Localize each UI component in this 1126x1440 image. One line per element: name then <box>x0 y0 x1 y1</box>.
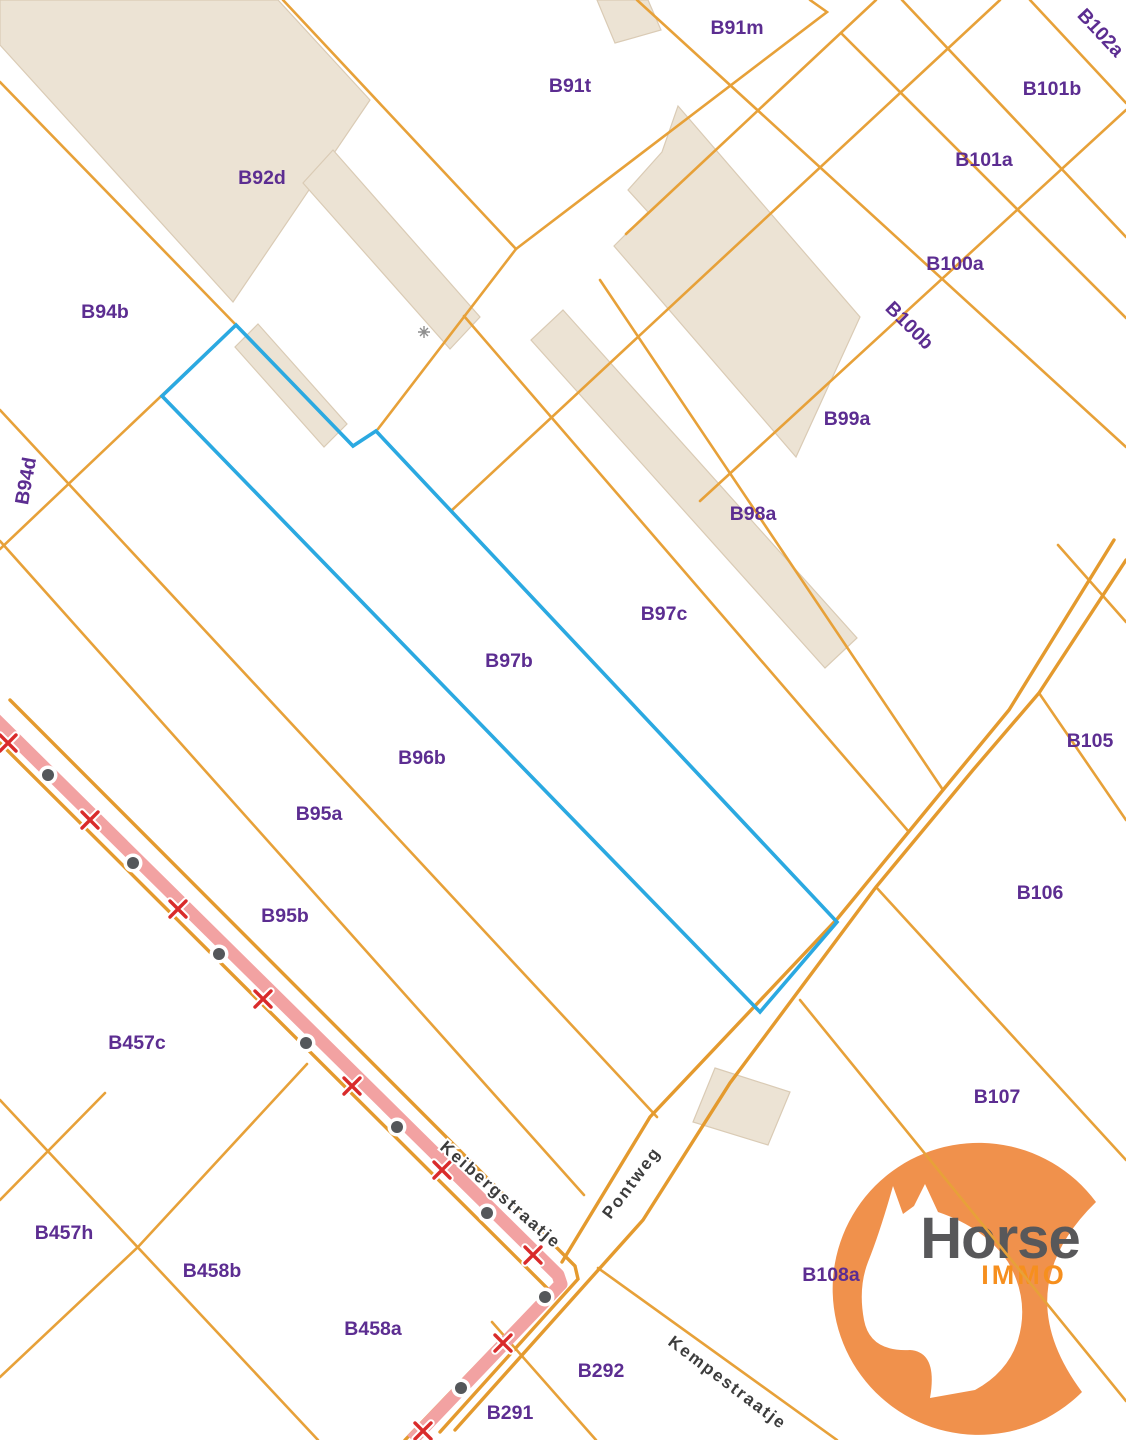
parcel-label: B94b <box>81 301 129 323</box>
parcel-boundary-line <box>0 410 657 1117</box>
footpath-dot-marker <box>391 1121 403 1133</box>
footpath-dot-marker <box>127 857 139 869</box>
map-canvas[interactable]: Horse IMMO KeibergstraatjePontwegKempest… <box>0 0 1126 1440</box>
parcel-label: B101b <box>1023 78 1082 100</box>
parcel-label: B107 <box>974 1086 1021 1108</box>
parcel-label: B100a <box>926 253 984 275</box>
parcel-label: B457h <box>35 1222 94 1244</box>
building-footprint <box>597 0 661 43</box>
parcel-label: B91m <box>710 17 763 39</box>
map-viewport: Horse IMMO KeibergstraatjePontwegKempest… <box>0 0 1126 1440</box>
parcel-boundary-line <box>0 541 584 1195</box>
parcel-label: B457c <box>108 1032 166 1054</box>
parcel-boundary-line <box>0 1064 307 1377</box>
horse-immo-logo: Horse IMMO <box>833 1143 1096 1435</box>
parcel-label: B97c <box>641 603 688 625</box>
parcel-label: B96b <box>398 747 446 769</box>
footpath-dot-marker <box>455 1382 467 1394</box>
parcel-label: B458b <box>183 1260 242 1282</box>
parcel-label: B291 <box>487 1402 534 1424</box>
footpath-dot-marker <box>481 1207 493 1219</box>
parcel-boundary-line <box>876 887 1126 1160</box>
building-footprint <box>0 0 370 302</box>
footpath-dot-marker <box>213 948 225 960</box>
footpath-dot-marker <box>300 1037 312 1049</box>
parcel-label: B94d <box>11 456 41 507</box>
footpath-dot-marker <box>42 769 54 781</box>
footpath-dot-marker <box>539 1291 551 1303</box>
parcel-label: B95b <box>261 905 309 927</box>
parcel-label: B292 <box>578 1360 625 1382</box>
parcel-boundary-line <box>598 1268 837 1440</box>
parcel-label: B95a <box>296 803 343 825</box>
parcel-label: B108a <box>802 1264 860 1286</box>
building-footprint <box>693 1068 790 1145</box>
street-name-label: Kempestraatje <box>665 1332 791 1433</box>
parcel-label: B99a <box>824 408 871 430</box>
parcel-boundary-line <box>0 1093 105 1200</box>
parcel-label: B91t <box>549 75 592 97</box>
street-labels-layer: KeibergstraatjePontwegKempestraatje <box>436 1137 790 1433</box>
parcel-label: B98a <box>730 503 777 525</box>
parcel-boundary-line <box>1039 693 1126 820</box>
parcel-label: B106 <box>1017 882 1064 904</box>
parcel-boundary-line <box>464 316 909 832</box>
parcel-label: B458a <box>344 1318 402 1340</box>
building-footprint <box>303 150 480 349</box>
parcel-label: B92d <box>238 167 286 189</box>
parcel-label: B105 <box>1067 730 1114 752</box>
building-footprint <box>614 106 860 457</box>
parcel-boundary-line <box>841 33 1126 318</box>
survey-cross-icon <box>418 326 430 338</box>
parcel-label: B97b <box>485 650 533 672</box>
parcel-label: B101a <box>955 149 1013 171</box>
buildings-layer <box>0 0 860 1145</box>
